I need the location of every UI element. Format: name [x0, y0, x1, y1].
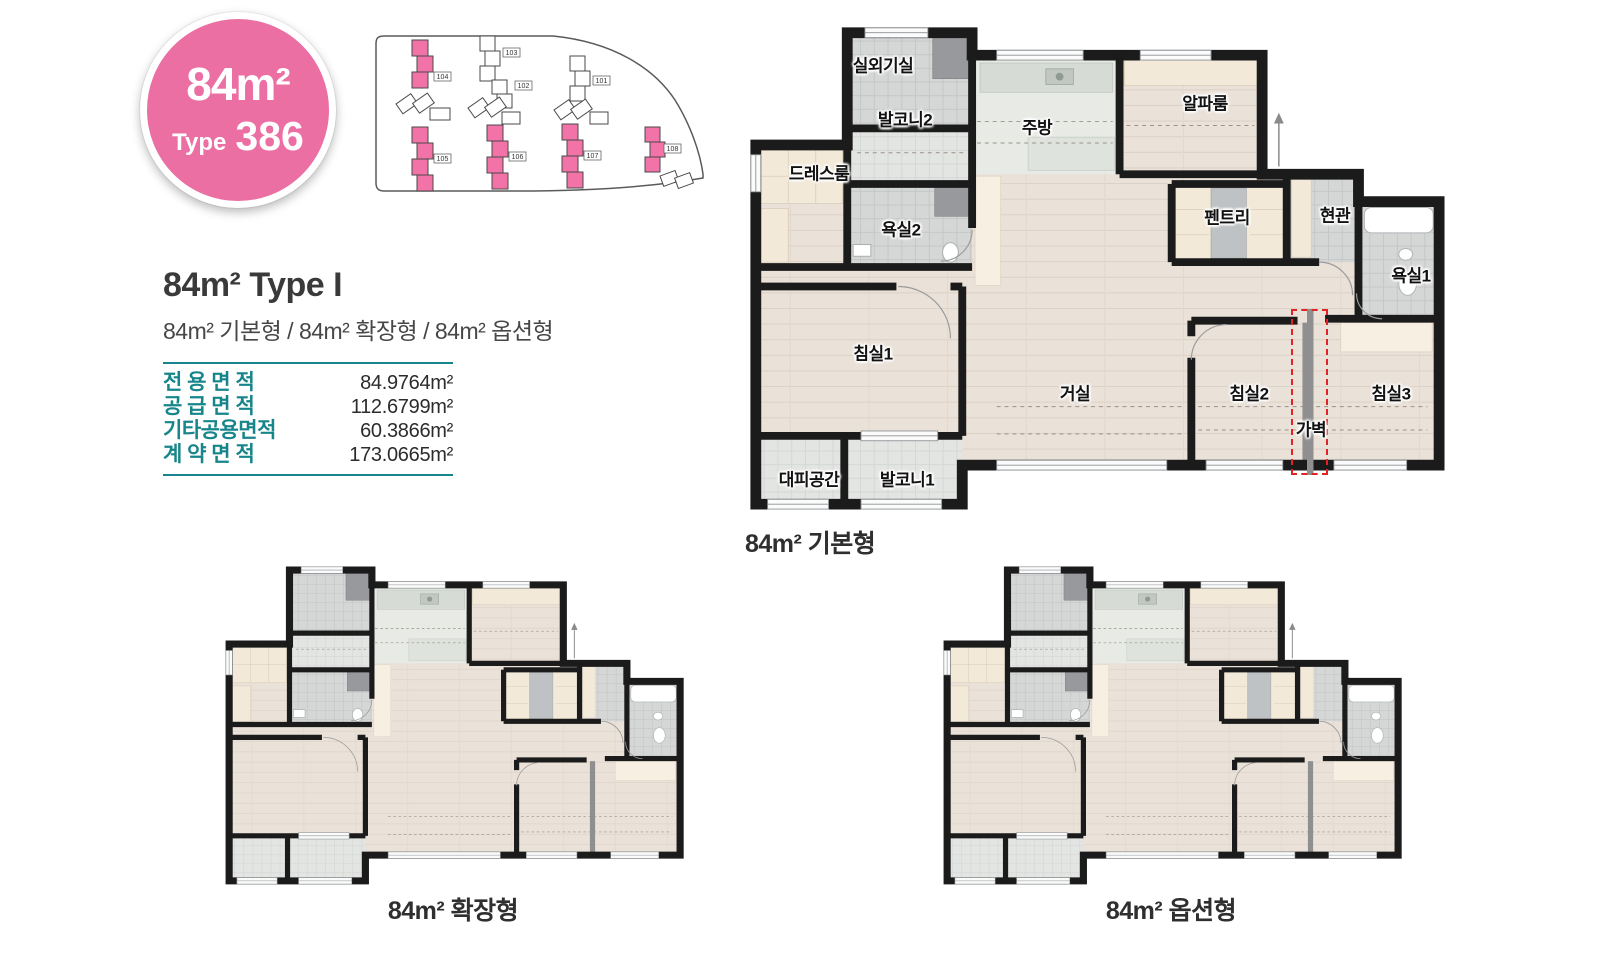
badge-area-label: 84m² [186, 60, 289, 108]
area-row-label: 계 약 면 적 [163, 443, 254, 466]
table-row: 기타공용면적 60.3866m² [163, 419, 453, 443]
room-label-kitchen: 주방 [1022, 114, 1052, 139]
building-label-105: 105 [434, 154, 451, 163]
room-label-alpha-room: 알파룸 [1182, 90, 1227, 115]
room-label-entrance: 현관 [1320, 202, 1350, 227]
type-badge: 84m² Type 386 [140, 12, 336, 208]
svg-text:101: 101 [596, 78, 608, 85]
area-row-label: 기타공용면적 [163, 419, 276, 442]
plan-caption-basic: 84m² 기본형 [745, 524, 875, 560]
page: 84m² Type 386 [0, 0, 1600, 963]
svg-text:107: 107 [587, 153, 599, 160]
building-cluster [430, 108, 450, 120]
svg-text:104: 104 [437, 74, 449, 81]
area-row-value: 84.9764m² [360, 372, 453, 395]
room-label-bathroom2: 욕실2 [881, 216, 920, 241]
room-label-balcony2: 발코니2 [878, 106, 932, 131]
building-cluster [502, 112, 520, 124]
building-label-106: 106 [509, 152, 526, 161]
room-label-outdoor-unit: 실외기실 [853, 52, 914, 77]
building-label-108: 108 [664, 144, 681, 153]
room-label-pantry: 펜트리 [1204, 204, 1249, 229]
room-label-bedroom1: 침실1 [853, 340, 892, 365]
room-label-living-room: 거실 [1060, 380, 1090, 405]
room-label-partition-wall: 가벽 [1296, 416, 1326, 441]
room-label-bedroom2: 침실2 [1229, 380, 1268, 405]
area-row-value: 112.6799m² [351, 396, 453, 419]
area-row-label: 전 용 면 적 [163, 371, 254, 394]
badge-type-line: Type 386 [172, 113, 304, 160]
area-row-value: 60.3866m² [360, 420, 453, 443]
table-row: 공 급 면 적 112.6799m² [163, 395, 453, 419]
building-label-104: 104 [434, 72, 451, 81]
room-label-bathroom1: 욕실1 [1391, 262, 1430, 287]
badge-type-number: 386 [235, 113, 303, 160]
svg-text:105: 105 [437, 156, 449, 163]
site-plan: 104 103 102 101 105 106 107 108 [368, 28, 708, 200]
room-label-balcony1: 발코니1 [880, 466, 934, 491]
area-table: 전 용 면 적 84.9764m² 공 급 면 적 112.6799m² 기타공… [163, 362, 453, 476]
building-label-103: 103 [503, 48, 520, 57]
plan-caption-extended: 84m² 확장형 [222, 891, 684, 927]
floor-plan-option [940, 563, 1402, 886]
badge-type-label: Type [172, 129, 226, 157]
area-row-value: 173.0665m² [349, 444, 453, 467]
floor-plan-extended [222, 563, 684, 886]
building-label-107: 107 [584, 151, 601, 160]
svg-text:103: 103 [506, 50, 518, 57]
floor-plan-basic: 실외기실 발코니2 주방 알파룸 드레스룸 욕실2 펜트리 현관 욕실1 침실1… [745, 22, 1445, 512]
plan-caption-option: 84m² 옵션형 [940, 891, 1402, 927]
page-subtitle: 84m² 기본형 / 84m² 확장형 / 84m² 옵션형 [163, 312, 593, 346]
building-cluster [590, 112, 608, 124]
building-label-101: 101 [593, 76, 610, 85]
area-row-label: 공 급 면 적 [163, 395, 254, 418]
table-row: 전 용 면 적 84.9764m² [163, 371, 453, 395]
svg-text:106: 106 [512, 154, 524, 161]
page-title: 84m² Type I [163, 266, 593, 305]
room-label-bedroom3: 침실3 [1371, 380, 1410, 405]
info-block: 84m² Type I 84m² 기본형 / 84m² 확장형 / 84m² 옵… [163, 266, 593, 476]
removable-partition-marker [1291, 309, 1328, 475]
building-label-102: 102 [515, 81, 532, 90]
room-label-dress-room: 드레스룸 [789, 160, 850, 185]
svg-text:102: 102 [518, 83, 530, 90]
room-label-shelter-space: 대피공간 [779, 466, 840, 491]
table-row: 계 약 면 적 173.0665m² [163, 443, 453, 467]
svg-text:108: 108 [667, 146, 679, 153]
